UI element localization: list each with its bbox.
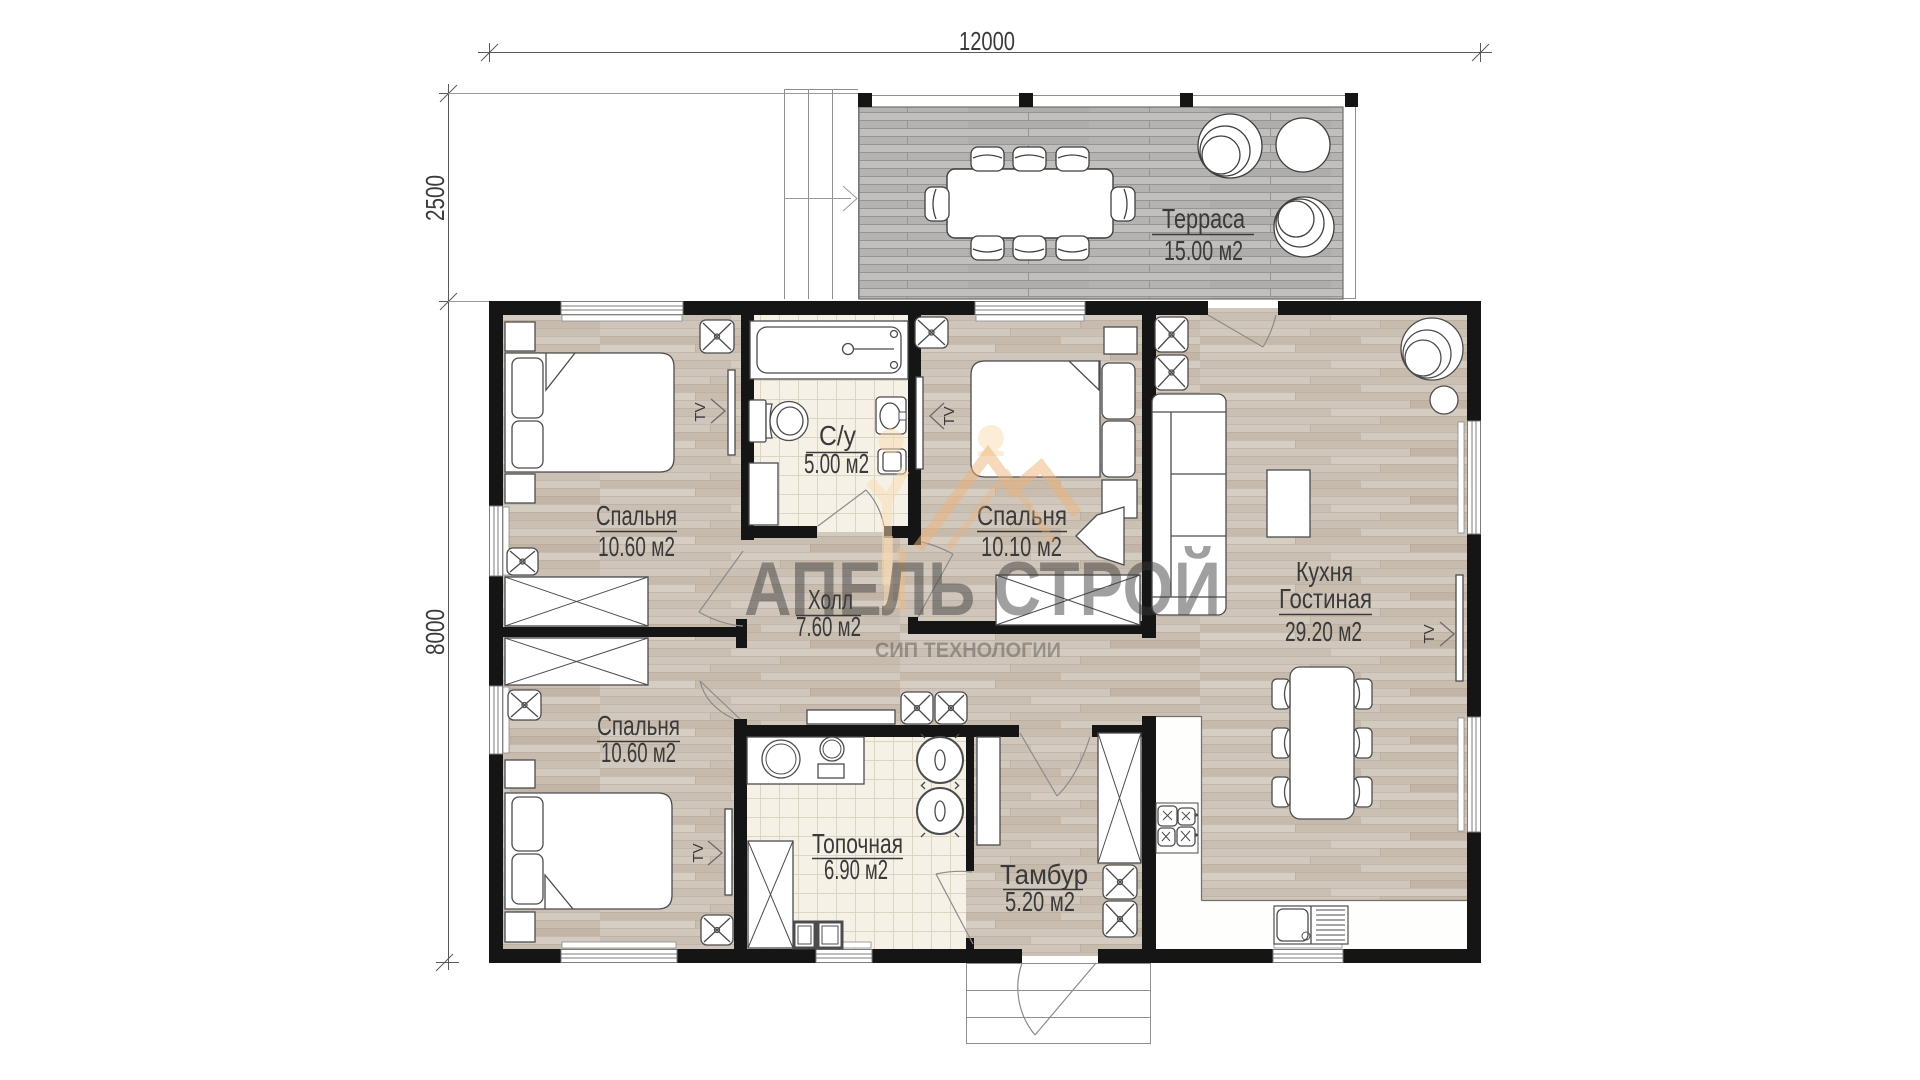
svg-text:2500: 2500 [420, 175, 450, 221]
svg-text:TV: TV [941, 406, 958, 425]
svg-text:10.60 м2: 10.60 м2 [601, 737, 676, 768]
svg-text:6.90 м2: 6.90 м2 [824, 854, 888, 885]
svg-text:29.20 м2: 29.20 м2 [1285, 616, 1362, 647]
svg-text:СИП ТЕХНОЛОГИИ: СИП ТЕХНОЛОГИИ [875, 639, 1061, 662]
svg-text:Спальня: Спальня [596, 500, 677, 531]
svg-text:TV: TV [1421, 624, 1438, 643]
svg-text:15.00 м2: 15.00 м2 [1164, 235, 1243, 266]
svg-text:8000: 8000 [420, 609, 450, 655]
svg-text:5.20 м2: 5.20 м2 [1005, 886, 1075, 917]
svg-text:Спальня: Спальня [977, 500, 1067, 531]
svg-text:10.60 м2: 10.60 м2 [598, 531, 675, 562]
svg-text:5.00 м2: 5.00 м2 [804, 448, 869, 479]
svg-text:С/у: С/у [819, 420, 856, 451]
svg-text:12000: 12000 [959, 26, 1015, 56]
svg-text:TV: TV [692, 402, 709, 421]
svg-text:АПЕЛЬ СТРОЙ: АПЕЛЬ СТРОЙ [744, 546, 1221, 632]
svg-text:TV: TV [690, 843, 707, 862]
svg-text:Гостиная: Гостиная [1279, 583, 1372, 614]
svg-text:Терраса: Терраса [1162, 203, 1245, 234]
